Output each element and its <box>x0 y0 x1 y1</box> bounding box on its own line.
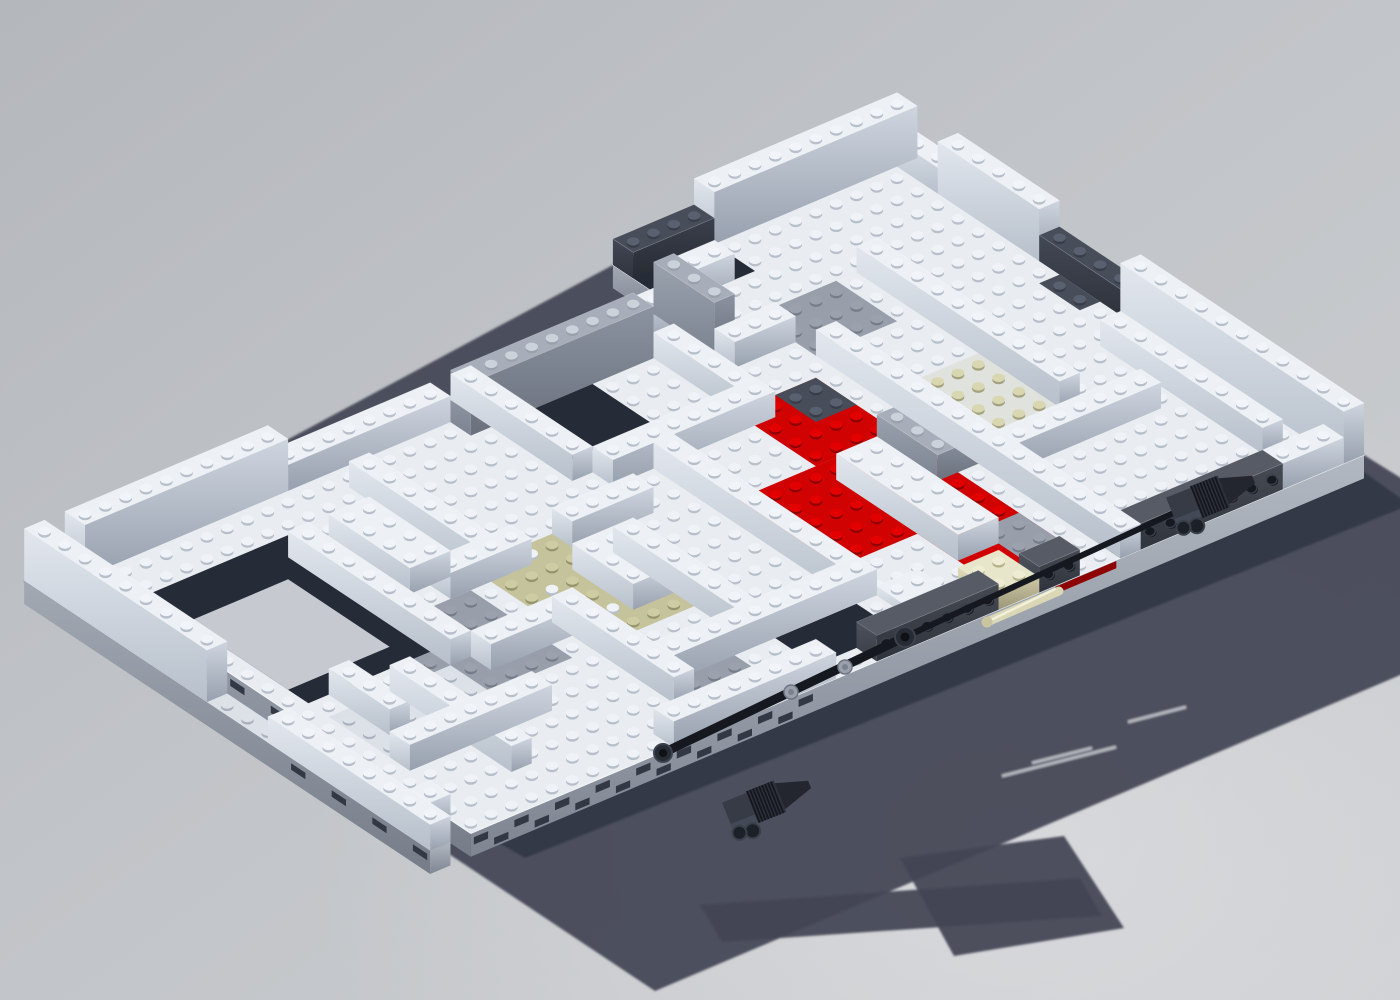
axle-bush <box>838 660 852 674</box>
render-viewport <box>0 0 1400 1000</box>
axle-bush <box>784 685 798 699</box>
lego-render-page <box>0 0 1400 1000</box>
ball-joint <box>895 627 915 647</box>
lego-3d-render <box>0 0 1400 1000</box>
ball-joint <box>654 744 672 762</box>
